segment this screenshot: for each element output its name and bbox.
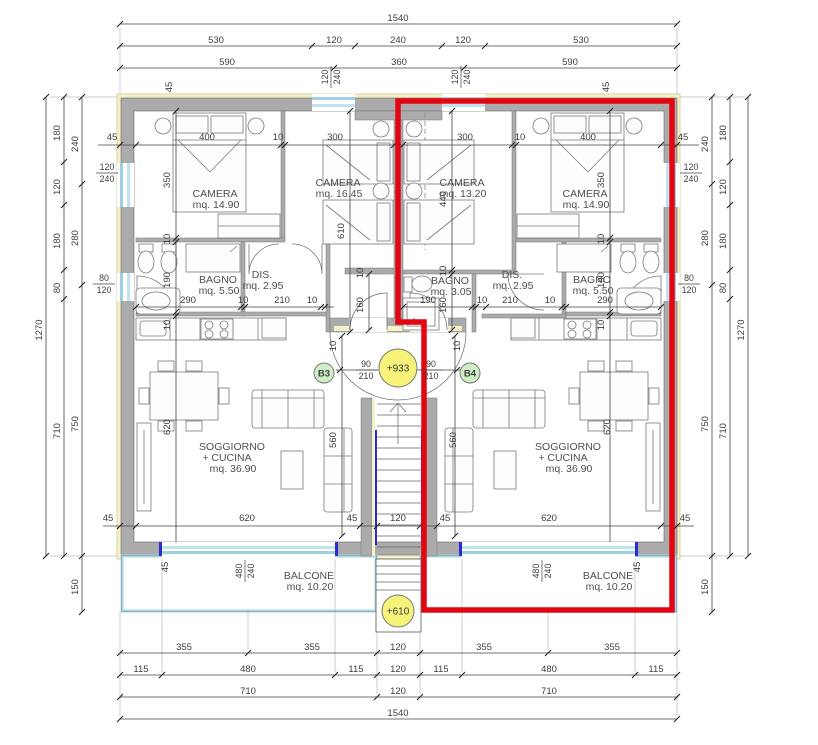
room-area: mq. 16.45 (316, 188, 363, 200)
window-tag-group: 120240 (680, 162, 702, 184)
window-tag-height: 240 (100, 174, 115, 184)
dimension-label: 115 (433, 664, 448, 675)
dimension-label: 620 (162, 419, 173, 435)
window-tag-width: 80 (684, 273, 694, 283)
dimension-label: 180 (52, 233, 63, 249)
dimension-label: 620 (602, 419, 613, 435)
dimension-label: 710 (52, 423, 63, 439)
dimension-label: 45 (160, 562, 171, 573)
window-tag-height: 240 (332, 70, 342, 85)
level-marker-label: +933 (387, 364, 410, 375)
dimension-label: 150 (700, 579, 711, 595)
kitchen-right (511, 318, 661, 340)
dimension-label: 280 (700, 230, 711, 246)
room-area: mq. 13.20 (440, 188, 487, 200)
dimension-label: 210 (502, 295, 518, 306)
room-area: mq. 5.50 (573, 285, 614, 297)
window-tag-width: 480 (234, 564, 244, 579)
dimension-label: 10 (328, 341, 339, 352)
room-area: mq. 36.90 (210, 463, 257, 475)
dimension-label: 180 (718, 233, 729, 249)
dimension-label: 350 (162, 172, 173, 188)
door-tag-width: 90 (426, 359, 436, 369)
window-tag-height: 120 (682, 285, 697, 295)
unit-marker-label: B3 (318, 369, 330, 380)
dimension-label: 160 (355, 297, 366, 313)
dimension-label: 45 (107, 132, 118, 143)
dimension-label: 590 (219, 57, 235, 68)
dimension-label: 120 (326, 35, 342, 46)
window-tag-group: 120240 (450, 66, 472, 88)
dimension-label: 120 (718, 179, 729, 195)
dimension-label: 750 (70, 416, 81, 432)
room-area: mq. 3.05 (431, 286, 472, 298)
dimension-label: 480 (541, 664, 557, 675)
dimension-label: 80 (52, 283, 63, 294)
window-tag-height: 120 (97, 285, 112, 295)
dimension-label: 120 (390, 513, 406, 524)
dimension-label: 10 (355, 268, 366, 279)
dimension-label: 240 (390, 35, 406, 46)
room-area: mq. 5.50 (199, 285, 240, 297)
dimension-label: 45 (678, 132, 689, 143)
dimension-label: 45 (103, 513, 114, 524)
room-area: mq. 10.20 (287, 581, 334, 593)
window-tag-height: 240 (543, 564, 553, 579)
dimension-label: 10 (273, 132, 284, 143)
dimension-label: 620 (541, 513, 557, 524)
dimension-label: 120 (390, 664, 406, 675)
dimension-label: 10 (596, 320, 607, 331)
dimension-label: 45 (632, 562, 643, 573)
dimension-label: 120 (455, 35, 471, 46)
dimension-label: 180 (52, 125, 63, 141)
window-tag-group: 80120 (93, 273, 115, 295)
door-tag-width: 90 (361, 359, 371, 369)
room-area: mq. 2.95 (493, 280, 534, 292)
window-tag-width: 120 (100, 162, 115, 172)
dimension-label: 1540 (387, 13, 408, 24)
dimension-label: 280 (70, 230, 81, 246)
dimension-label: 530 (573, 35, 589, 46)
dimension-label: 10 (162, 234, 173, 245)
dimension-label: 120 (390, 642, 406, 653)
room-area: mq. 14.90 (193, 199, 240, 211)
dimension-label: 160 (438, 297, 449, 313)
door-tag-height: 210 (359, 371, 374, 381)
dimension-label: 290 (180, 295, 196, 306)
dimension-label: 10 (477, 295, 488, 306)
dimension-label: 710 (541, 686, 557, 697)
room-area: mq. 2.95 (243, 280, 284, 292)
dimension-label: 45 (680, 513, 691, 524)
dimension-label: 45 (164, 82, 175, 93)
dimension-label: 560 (328, 432, 339, 448)
dimension-label: 750 (700, 416, 711, 432)
level-marker-label: +610 (387, 607, 410, 618)
dimension-label: 400 (199, 132, 215, 143)
dimension-label: 400 (580, 132, 596, 143)
dimension-label: 210 (274, 295, 290, 306)
dimension-label: 1270 (34, 319, 45, 340)
dimension-label: 1540 (387, 708, 408, 719)
dimension-label: 115 (348, 664, 363, 675)
dimension-label: 10 (452, 341, 463, 352)
dimension-label: 300 (327, 132, 343, 143)
window-tag-width: 80 (99, 273, 109, 283)
dimension-label: 190 (162, 272, 173, 288)
door-tag-height: 210 (424, 371, 439, 381)
window-tag-width: 120 (320, 70, 330, 85)
unit-marker-label: B4 (464, 369, 477, 380)
dimension-label: 350 (596, 172, 607, 188)
floor-plan-page: B3B4+933+610 154053012024012053059036059… (0, 0, 818, 745)
window-tag-height: 240 (246, 564, 256, 579)
window-tag-width: 120 (684, 162, 699, 172)
room-area: mq. 10.20 (586, 581, 633, 593)
window-tag-height: 240 (462, 70, 472, 85)
dimension-label: 620 (239, 513, 255, 524)
dimension-label: 115 (648, 664, 663, 675)
dimension-label: 590 (562, 57, 578, 68)
floor-plan-drawing: B3B4+933+610 154053012024012053059036059… (0, 0, 818, 745)
room-area: mq. 14.90 (563, 199, 610, 211)
dimension-label: 150 (70, 579, 81, 595)
dimension-label: 10 (307, 295, 318, 306)
window-tag-group: 120240 (96, 162, 118, 184)
dimension-label: 710 (240, 686, 256, 697)
dimension-label: 355 (476, 642, 492, 653)
dimension-label: 80 (718, 283, 729, 294)
dimension-label: 10 (596, 234, 607, 245)
dimension-label: 10 (515, 132, 526, 143)
window-tag-width: 480 (531, 564, 541, 579)
dimension-label: 240 (70, 136, 81, 152)
dimension-label: 240 (700, 136, 711, 152)
dimension-label: 560 (448, 432, 459, 448)
dimension-label: 45 (347, 513, 358, 524)
dimension-label: 45 (440, 513, 451, 524)
dimension-label: 355 (604, 642, 620, 653)
dimension-label: 710 (718, 423, 729, 439)
dimension-label: 180 (718, 125, 729, 141)
window-tag-group: 80120 (678, 273, 700, 295)
room-area: mq. 36.90 (546, 463, 593, 475)
dimension-label: 360 (391, 57, 407, 68)
dimension-label: 480 (240, 664, 256, 675)
window-tag-group: 120240 (320, 66, 342, 88)
dimension-label: 530 (208, 35, 224, 46)
kitchen-left (136, 318, 286, 340)
dimension-label: 115 (133, 664, 148, 675)
dimension-label: 610 (336, 223, 347, 239)
dimension-label: 10 (162, 320, 173, 331)
dimension-label: 355 (304, 642, 320, 653)
dimension-label: 120 (52, 179, 63, 195)
dimension-label: 45 (601, 82, 612, 93)
dimension-label: 355 (176, 642, 192, 653)
dimension-label: 120 (390, 686, 406, 697)
dimension-label: 10 (545, 295, 556, 306)
dimension-label: 1270 (736, 319, 747, 340)
window-tag-width: 120 (450, 70, 460, 85)
window-tag-height: 240 (684, 174, 699, 184)
dimension-label: 300 (457, 132, 473, 143)
